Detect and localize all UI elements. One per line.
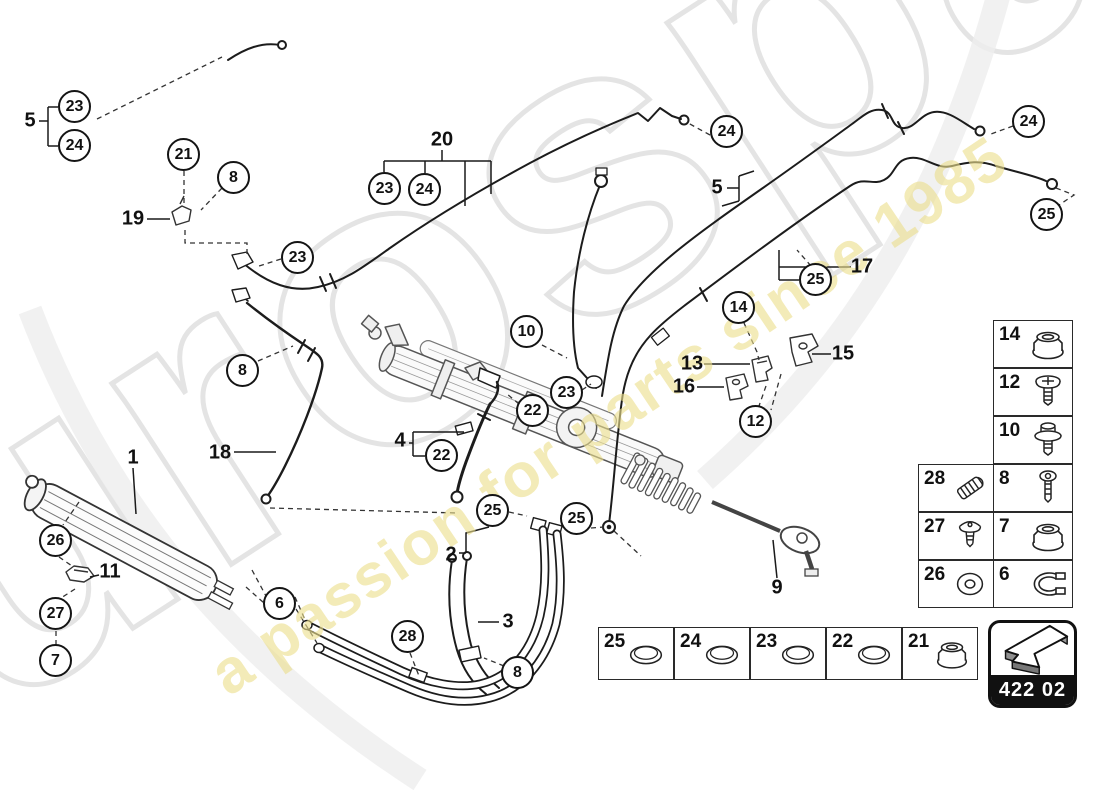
clamp-ring-icon <box>1026 564 1070 604</box>
seals-table-cell-21[interactable]: 21 <box>902 627 978 680</box>
o-ring-icon <box>699 636 745 672</box>
flanged-bolt-icon <box>1026 420 1070 460</box>
part-callout-6[interactable]: 6 <box>263 587 296 620</box>
part-label-1[interactable]: 1 <box>127 447 138 470</box>
part-callout-22[interactable]: 22 <box>425 439 458 472</box>
part-callout-8[interactable]: 8 <box>501 656 534 689</box>
round-head-screw-icon <box>949 517 991 555</box>
o-ring-icon <box>851 636 897 672</box>
part-callout-14[interactable]: 14 <box>722 291 755 324</box>
parts-table-cell-26[interactable]: 26 <box>918 560 994 608</box>
pan-head-screw-icon <box>1026 372 1070 412</box>
part-callout-10[interactable]: 10 <box>510 315 543 348</box>
part-label-11[interactable]: 11 <box>99 561 120 584</box>
parts-table-cell-10[interactable]: 10 <box>993 416 1073 464</box>
part-callout-23[interactable]: 23 <box>368 172 401 205</box>
o-ring-icon <box>775 636 821 672</box>
part-callout-21[interactable]: 21 <box>167 138 200 171</box>
part-callout-27[interactable]: 27 <box>39 597 72 630</box>
parts-table-cell-8[interactable]: 8 <box>993 464 1073 512</box>
part-callout-25[interactable]: 25 <box>476 494 509 527</box>
o-ring-icon <box>623 636 669 672</box>
part-callout-7[interactable]: 7 <box>39 644 72 677</box>
part-label-3[interactable]: 3 <box>502 611 513 634</box>
part-label-17[interactable]: 17 <box>851 256 873 279</box>
part-callout-24[interactable]: 24 <box>408 173 441 206</box>
direction-arrow-icon <box>991 623 1074 675</box>
seals-table-cell-25[interactable]: 25 <box>598 627 674 680</box>
seals-table-cell-24[interactable]: 24 <box>674 627 750 680</box>
part-label-18[interactable]: 18 <box>209 442 231 465</box>
part-label-4[interactable]: 4 <box>394 430 405 453</box>
part-callout-8[interactable]: 8 <box>217 161 250 194</box>
part-label-2[interactable]: 2 <box>445 544 456 567</box>
part-label-20[interactable]: 20 <box>431 129 453 152</box>
part-callout-24[interactable]: 24 <box>1012 105 1045 138</box>
socket-head-bolt-icon <box>1026 468 1070 508</box>
part-label-16[interactable]: 16 <box>673 376 695 399</box>
parts-table-cell-14[interactable]: 14 <box>993 320 1073 368</box>
parts-table-cell-28[interactable]: 28 <box>918 464 994 512</box>
part-label-19[interactable]: 19 <box>122 208 144 231</box>
tie-rod-end-drawing <box>712 502 823 576</box>
part-label-9[interactable]: 9 <box>771 577 782 600</box>
spring-clip-icon <box>949 468 991 508</box>
part-callout-23[interactable]: 23 <box>550 376 583 409</box>
parts-table-cell-27[interactable]: 27 <box>918 512 994 560</box>
flange-nut-icon <box>1026 515 1070 557</box>
washer-icon <box>949 564 991 604</box>
flange-nut-icon <box>1026 324 1070 364</box>
parts-table-cell-7[interactable]: 7 <box>993 512 1073 560</box>
part-label-5[interactable]: 5 <box>711 177 722 200</box>
part-callout-23[interactable]: 23 <box>58 90 91 123</box>
part-label-13[interactable]: 13 <box>681 353 703 376</box>
part-callout-28[interactable]: 28 <box>391 620 424 653</box>
part-callout-25[interactable]: 25 <box>560 502 593 535</box>
diagram-section-box[interactable]: 422 02 <box>988 620 1077 708</box>
part-label-5[interactable]: 5 <box>24 110 35 133</box>
flange-nut-icon <box>931 634 973 674</box>
seals-table-cell-22[interactable]: 22 <box>826 627 902 680</box>
part-callout-12[interactable]: 12 <box>739 405 772 438</box>
parts-table-cell-12[interactable]: 12 <box>993 368 1073 416</box>
part-callout-23[interactable]: 23 <box>281 241 314 274</box>
seals-table-cell-23[interactable]: 23 <box>750 627 826 680</box>
diagram-art <box>0 0 1100 800</box>
part-callout-25[interactable]: 25 <box>1030 198 1063 231</box>
part-callout-24[interactable]: 24 <box>58 129 91 162</box>
part-callout-8[interactable]: 8 <box>226 354 259 387</box>
part-label-15[interactable]: 15 <box>832 343 854 366</box>
diagram-code-badge: 422 02 <box>991 675 1074 705</box>
part-callout-24[interactable]: 24 <box>710 115 743 148</box>
parts-table-cell-6[interactable]: 6 <box>993 560 1073 608</box>
parts-diagram-page: eurospares <box>0 0 1100 800</box>
part-callout-22[interactable]: 22 <box>516 394 549 427</box>
part-callout-26[interactable]: 26 <box>39 524 72 557</box>
part-callout-25[interactable]: 25 <box>799 263 832 296</box>
